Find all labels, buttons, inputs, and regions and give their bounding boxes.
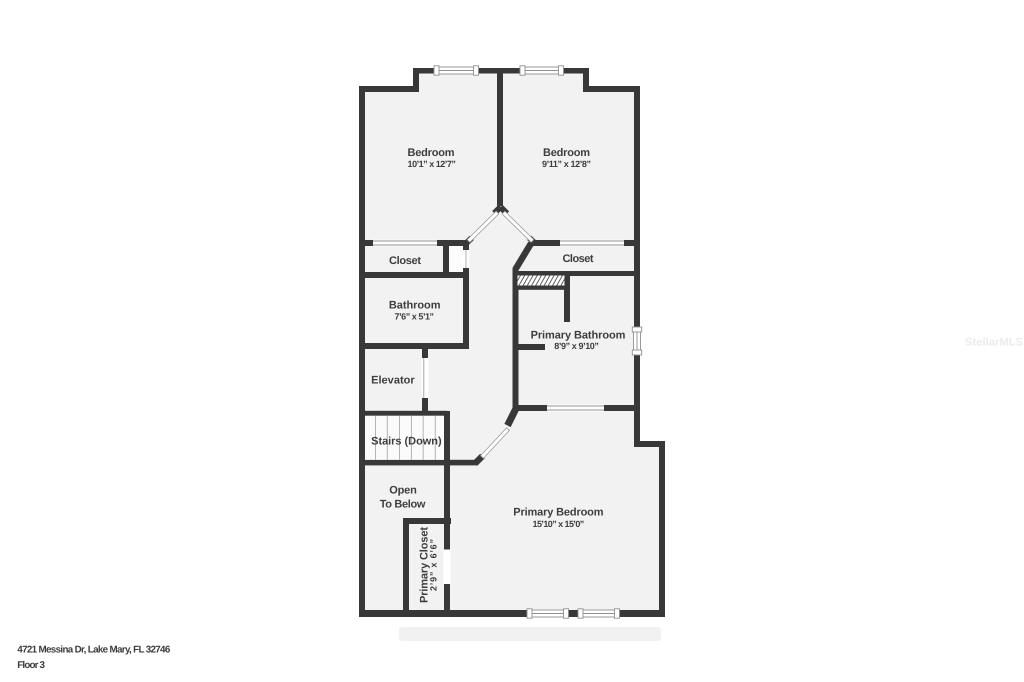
svg-text:Elevator: Elevator [371,375,415,387]
svg-text:8’9” x 9’10”: 8’9” x 9’10” [554,341,599,351]
svg-text:StellarMLS: StellarMLS [965,337,1023,349]
svg-text:9’11” x 12’8”: 9’11” x 12’8” [542,159,591,169]
svg-text:Closet: Closet [563,253,594,265]
svg-text:Bedroom: Bedroom [543,147,590,159]
svg-text:2’9” x 6’6”: 2’9” x 6’6” [429,539,439,591]
svg-text:Closet: Closet [389,255,421,267]
svg-text:Primary Bathroom: Primary Bathroom [531,329,626,341]
svg-text:4721 Messina Dr, Lake Mary, FL: 4721 Messina Dr, Lake Mary, FL 32746 [17,644,171,655]
svg-text:To Below: To Below [380,499,426,511]
svg-text:7’6” x 5’1”: 7’6” x 5’1” [395,312,435,322]
svg-text:15’10” x 15’0”: 15’10” x 15’0” [533,519,585,529]
svg-text:Stairs (Down): Stairs (Down) [371,436,442,448]
svg-text:Bedroom: Bedroom [408,147,455,159]
svg-text:Open: Open [389,485,417,497]
svg-text:10’1” x 12’7”: 10’1” x 12’7” [408,159,456,169]
svg-text:Primary Bedroom: Primary Bedroom [513,506,604,518]
svg-text:Bathroom: Bathroom [389,300,441,312]
svg-text:Floor 3: Floor 3 [17,660,45,671]
